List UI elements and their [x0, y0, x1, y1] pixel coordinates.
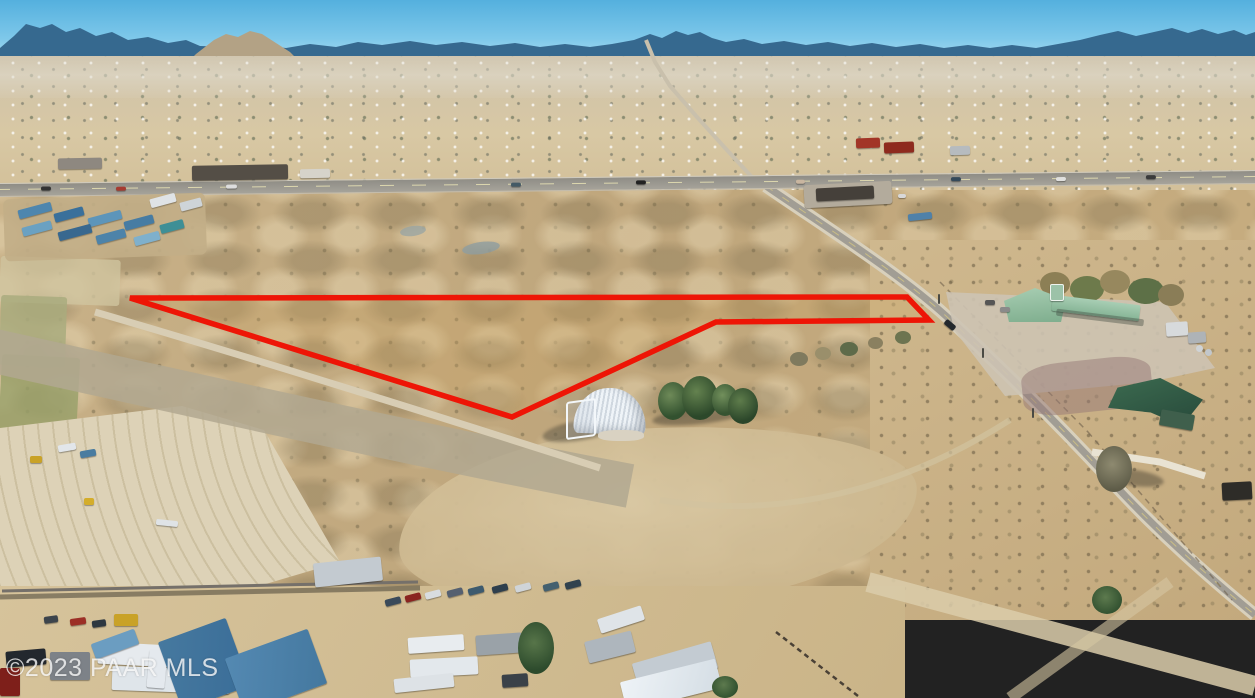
property-boundary-outline: [130, 297, 929, 417]
parcel-outline-layer: [0, 0, 1255, 698]
mls-watermark: ©2023 PAAR MLS: [6, 654, 219, 683]
aerial-photo: ©2023 PAAR MLS: [0, 0, 1255, 698]
